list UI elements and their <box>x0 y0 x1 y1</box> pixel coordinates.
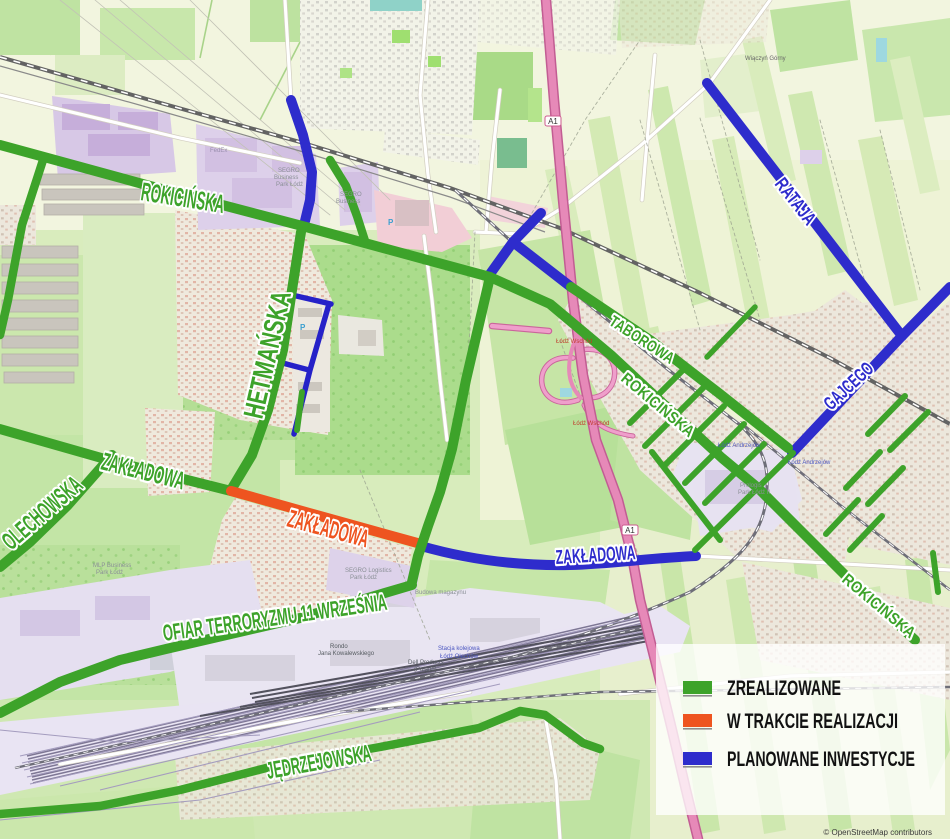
svg-text:© OpenStreetMap contributors: © OpenStreetMap contributors <box>823 828 932 837</box>
svg-text:SEGRO Logistics: SEGRO Logistics <box>345 568 392 574</box>
svg-text:W TRAKCIE REALIZACJI: W TRAKCIE REALIZACJI <box>727 710 898 733</box>
svg-text:Park Łódź: Park Łódź <box>276 182 303 188</box>
svg-text:Łódź Wschód: Łódź Wschód <box>573 421 609 427</box>
svg-text:Łódź Andrzejów: Łódź Andrzejów <box>788 460 831 466</box>
svg-text:P: P <box>388 218 394 227</box>
svg-text:Stacja kolejowa: Stacja kolejowa <box>438 646 480 652</box>
svg-text:FedEx: FedEx <box>210 148 227 154</box>
svg-text:A1: A1 <box>548 117 558 126</box>
svg-text:P: P <box>300 323 306 332</box>
svg-text:Park Łódź II: Park Łódź II <box>738 490 770 496</box>
svg-text:ZREALIZOWANE: ZREALIZOWANE <box>727 677 841 700</box>
svg-text:Łódź Olechów: Łódź Olechów <box>440 654 479 660</box>
svg-text:Business: Business <box>336 199 360 205</box>
svg-text:Łódź Wschód: Łódź Wschód <box>556 339 592 345</box>
svg-text:SEGRO: SEGRO <box>278 168 300 174</box>
svg-text:Jana Kowalewskiego: Jana Kowalewskiego <box>318 651 375 657</box>
svg-text:SEGRO: SEGRO <box>340 192 362 198</box>
svg-text:Rondo: Rondo <box>330 644 348 650</box>
svg-text:(Poland): (Poland) <box>414 667 437 673</box>
svg-text:PLANOWANE INWESTYCJE: PLANOWANE INWESTYCJE <box>727 748 915 771</box>
svg-text:A1: A1 <box>625 526 635 535</box>
svg-text:Dell Products: Dell Products <box>408 660 444 666</box>
svg-text:Park Łódź: Park Łódź <box>350 575 377 581</box>
svg-text:Prologis: Prologis <box>740 483 762 489</box>
svg-text:Park Łódź: Park Łódź <box>96 570 123 576</box>
svg-text:Łódź Andrzejów: Łódź Andrzejów <box>718 443 761 449</box>
svg-text:Budowa magazynu: Budowa magazynu <box>415 590 466 596</box>
svg-text:Business: Business <box>274 175 298 181</box>
svg-text:MLP Business: MLP Business <box>93 563 131 569</box>
svg-text:Wiączyń Górny: Wiączyń Górny <box>745 56 786 62</box>
